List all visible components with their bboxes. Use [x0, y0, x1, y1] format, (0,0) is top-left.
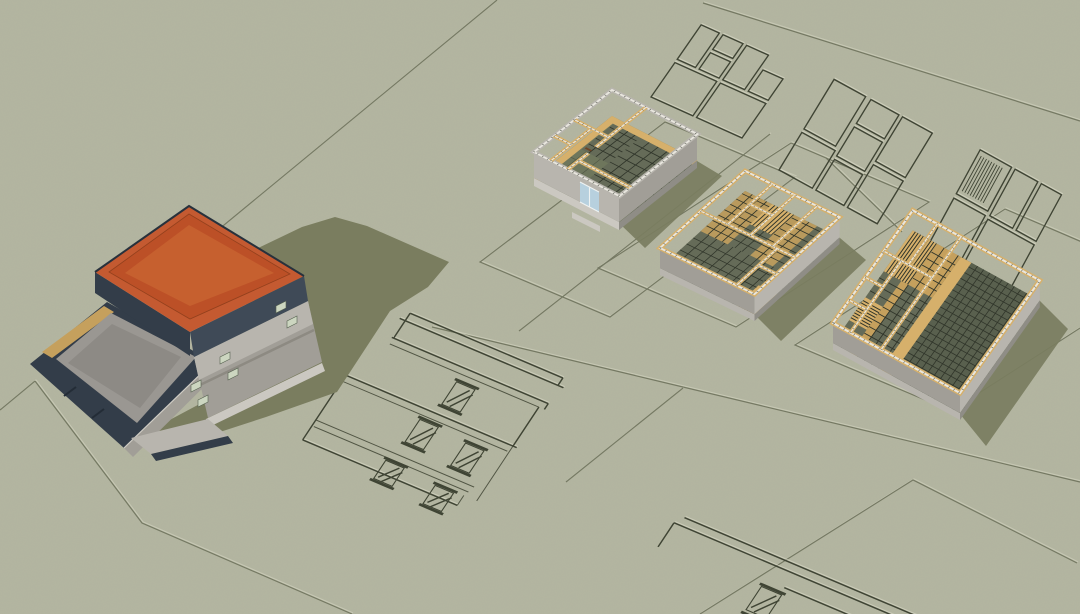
scene-canvas [0, 0, 1080, 614]
render-viewport [0, 0, 1080, 614]
